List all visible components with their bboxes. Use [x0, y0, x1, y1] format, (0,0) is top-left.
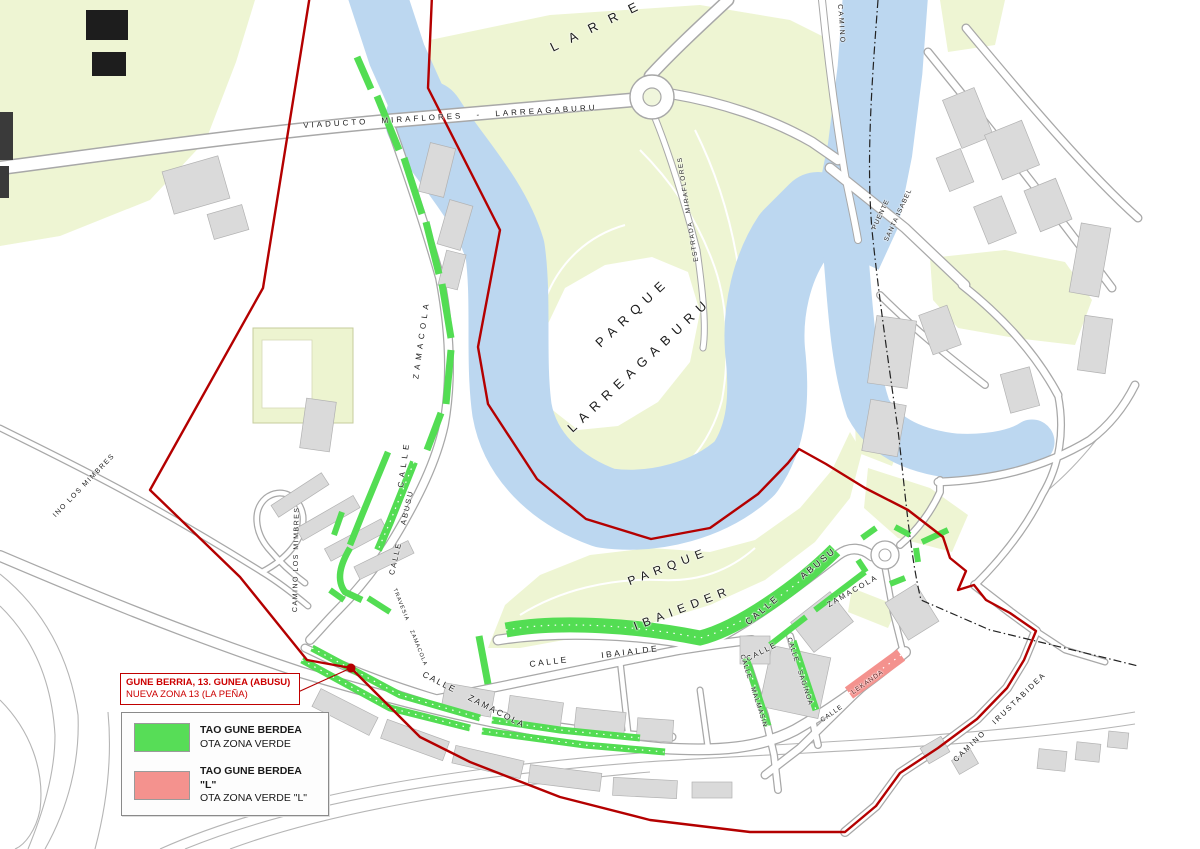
zone-title-basque: GUNE BERRIA, 13. GUNEA (ABUSU) [126, 677, 294, 689]
zone-title-box: GUNE BERRIA, 13. GUNEA (ABUSU) NUEVA ZON… [120, 673, 300, 705]
title-leader-dot [347, 664, 356, 673]
legend-pink-spanish: OTA ZONA VERDE "L" [200, 792, 320, 806]
legend-green-spanish: OTA ZONA VERDE [200, 738, 302, 752]
legend-pink-basque: TAO GUNE BERDEA "L" [200, 765, 320, 792]
legend-swatch-pink [134, 771, 190, 800]
roundabout-miraflores [630, 75, 674, 119]
legend: TAO GUNE BERDEA OTA ZONA VERDE TAO GUNE … [121, 712, 329, 816]
roundabout-abusu [871, 541, 899, 569]
zone-title-spanish: NUEVA ZONA 13 (LA PEÑA) [126, 689, 294, 701]
legend-green-basque: TAO GUNE BERDEA [200, 724, 302, 738]
park-patch-topright [940, 0, 1005, 52]
legend-item-green: TAO GUNE BERDEA OTA ZONA VERDE [134, 723, 320, 752]
sports-field [253, 328, 353, 423]
map-canvas: VIADUCTO MIRAFLORES - LARREAGABURU LARRE… [0, 0, 1200, 849]
legend-swatch-green [134, 723, 190, 752]
legend-item-pink: TAO GUNE BERDEA "L" OTA ZONA VERDE "L" [134, 765, 320, 806]
